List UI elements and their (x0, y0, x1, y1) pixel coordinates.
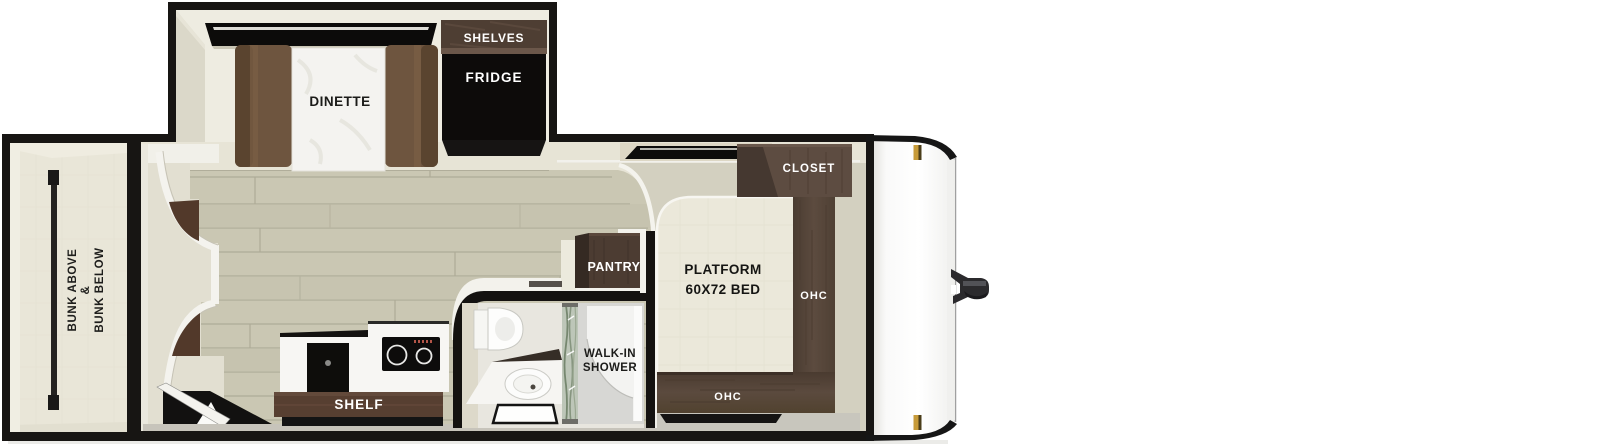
svg-text:FRIDGE: FRIDGE (465, 70, 522, 85)
svg-text:OHC: OHC (800, 290, 827, 302)
svg-text:PLATFORM: PLATFORM (684, 262, 761, 277)
svg-text:CLOSET: CLOSET (783, 163, 836, 175)
svg-text:SHELF: SHELF (334, 397, 383, 412)
svg-text:BUNK ABOVE: BUNK ABOVE (67, 249, 79, 332)
svg-text:SHOWER: SHOWER (583, 362, 637, 374)
svg-text:OHC: OHC (714, 391, 741, 403)
svg-text:60X72 BED: 60X72 BED (686, 282, 761, 297)
svg-text:BUNK BELOW: BUNK BELOW (94, 247, 106, 332)
svg-text:WALK-IN: WALK-IN (584, 348, 636, 360)
svg-text:SHELVES: SHELVES (464, 31, 525, 45)
svg-text:DINETTE: DINETTE (309, 94, 370, 109)
svg-text:&: & (80, 286, 92, 295)
svg-text:PANTRY: PANTRY (588, 260, 641, 274)
